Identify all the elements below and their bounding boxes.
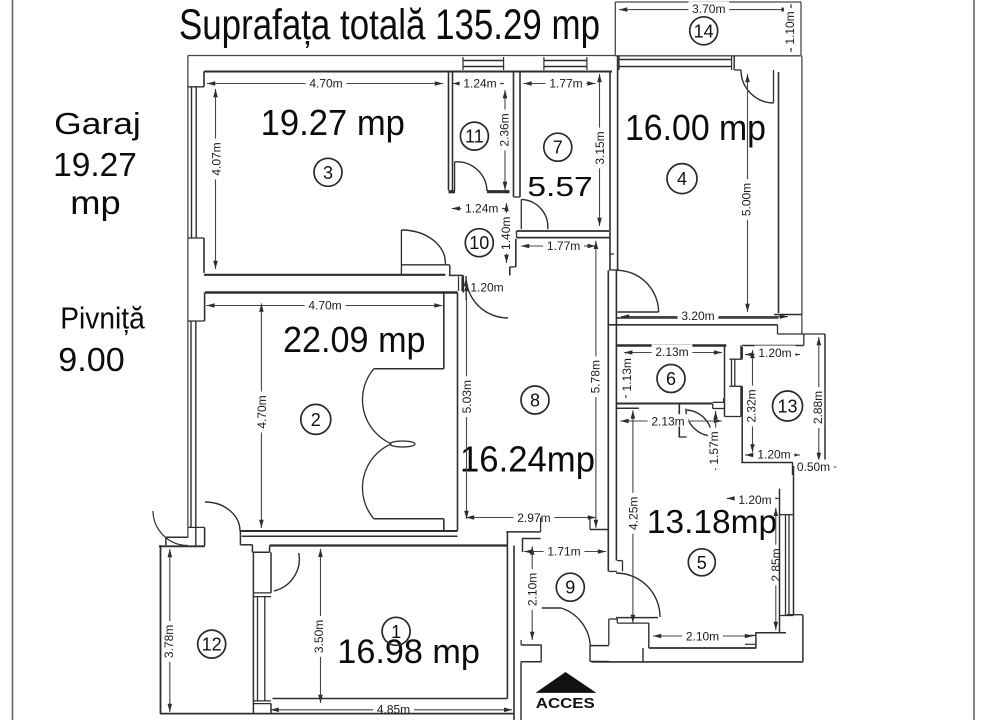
svg-text:1.20m: 1.20m xyxy=(470,281,503,295)
svg-text:2.36m: 2.36m xyxy=(498,113,512,146)
svg-text:9: 9 xyxy=(565,578,575,598)
svg-text:16.24mp: 16.24mp xyxy=(460,439,595,480)
svg-text:5.00m: 5.00m xyxy=(740,183,754,216)
svg-text:2.10m: 2.10m xyxy=(686,629,719,643)
svg-text:19.27 mp: 19.27 mp xyxy=(261,102,405,143)
svg-text:13.18mp: 13.18mp xyxy=(647,503,777,540)
svg-text:1.13m: 1.13m xyxy=(620,358,634,391)
svg-text:14: 14 xyxy=(694,21,714,41)
svg-text:Suprafața totală 135.29 mp: Suprafața totală 135.29 mp xyxy=(179,1,600,49)
svg-text:11: 11 xyxy=(465,127,484,147)
svg-text:4.70m: 4.70m xyxy=(308,298,341,312)
svg-text:Pivniță: Pivniță xyxy=(60,301,145,336)
svg-text:ACCES: ACCES xyxy=(536,696,595,712)
svg-text:6: 6 xyxy=(666,369,676,389)
svg-text:1.10m: 1.10m xyxy=(783,11,797,44)
svg-text:2.13m: 2.13m xyxy=(651,415,684,429)
svg-text:22.09 mp: 22.09 mp xyxy=(283,319,426,360)
svg-text:3.15m: 3.15m xyxy=(593,131,607,164)
svg-text:3: 3 xyxy=(323,163,333,183)
svg-text:10: 10 xyxy=(469,233,489,253)
svg-text:9.00: 9.00 xyxy=(58,341,124,378)
svg-text:3.78m: 3.78m xyxy=(162,625,176,658)
svg-text:1.71m: 1.71m xyxy=(547,545,580,559)
svg-text:4: 4 xyxy=(677,169,687,189)
svg-text:3.20m: 3.20m xyxy=(681,309,714,323)
svg-text:2.13m: 2.13m xyxy=(655,345,688,359)
svg-text:1: 1 xyxy=(391,622,401,642)
svg-text:1.20m: 1.20m xyxy=(738,493,771,507)
svg-text:2: 2 xyxy=(311,410,321,430)
svg-text:Garaj: Garaj xyxy=(54,106,141,141)
svg-text:5.57: 5.57 xyxy=(527,171,592,202)
svg-text:mp: mp xyxy=(70,184,120,221)
svg-text:2.88m: 2.88m xyxy=(811,391,825,424)
svg-text:5.78m: 5.78m xyxy=(588,360,602,393)
svg-text:1.77m: 1.77m xyxy=(547,239,580,253)
svg-text:0.50m: 0.50m xyxy=(797,460,830,474)
svg-text:1.20m: 1.20m xyxy=(757,448,790,462)
svg-text:1.40m: 1.40m xyxy=(499,217,513,250)
svg-text:5.03m: 5.03m xyxy=(460,380,474,413)
svg-text:13: 13 xyxy=(777,396,797,416)
svg-text:4.07m: 4.07m xyxy=(210,142,224,175)
svg-text:7: 7 xyxy=(553,138,563,158)
svg-text:1.20m: 1.20m xyxy=(758,346,791,360)
svg-text:2.97m: 2.97m xyxy=(517,511,550,525)
svg-text:1.57m: 1.57m xyxy=(707,431,721,464)
svg-text:8: 8 xyxy=(530,390,540,410)
svg-text:3.70m: 3.70m xyxy=(692,2,725,16)
svg-text:5: 5 xyxy=(697,553,707,573)
svg-text:4.70m: 4.70m xyxy=(309,77,342,91)
svg-text:2.32m: 2.32m xyxy=(745,389,759,422)
svg-text:4.70m: 4.70m xyxy=(255,395,269,428)
svg-text:1.77m: 1.77m xyxy=(549,76,582,90)
svg-text:19.27: 19.27 xyxy=(53,146,137,183)
svg-text:1.24m: 1.24m xyxy=(463,76,496,90)
svg-text:2.85m: 2.85m xyxy=(769,548,783,581)
svg-text:3.50m: 3.50m xyxy=(312,620,326,653)
svg-text:16.00 mp: 16.00 mp xyxy=(625,107,766,148)
svg-text:2.10m: 2.10m xyxy=(525,573,539,606)
svg-text:12: 12 xyxy=(202,635,222,655)
svg-text:4.25m: 4.25m xyxy=(627,497,641,530)
svg-text:1.24m: 1.24m xyxy=(465,201,498,215)
